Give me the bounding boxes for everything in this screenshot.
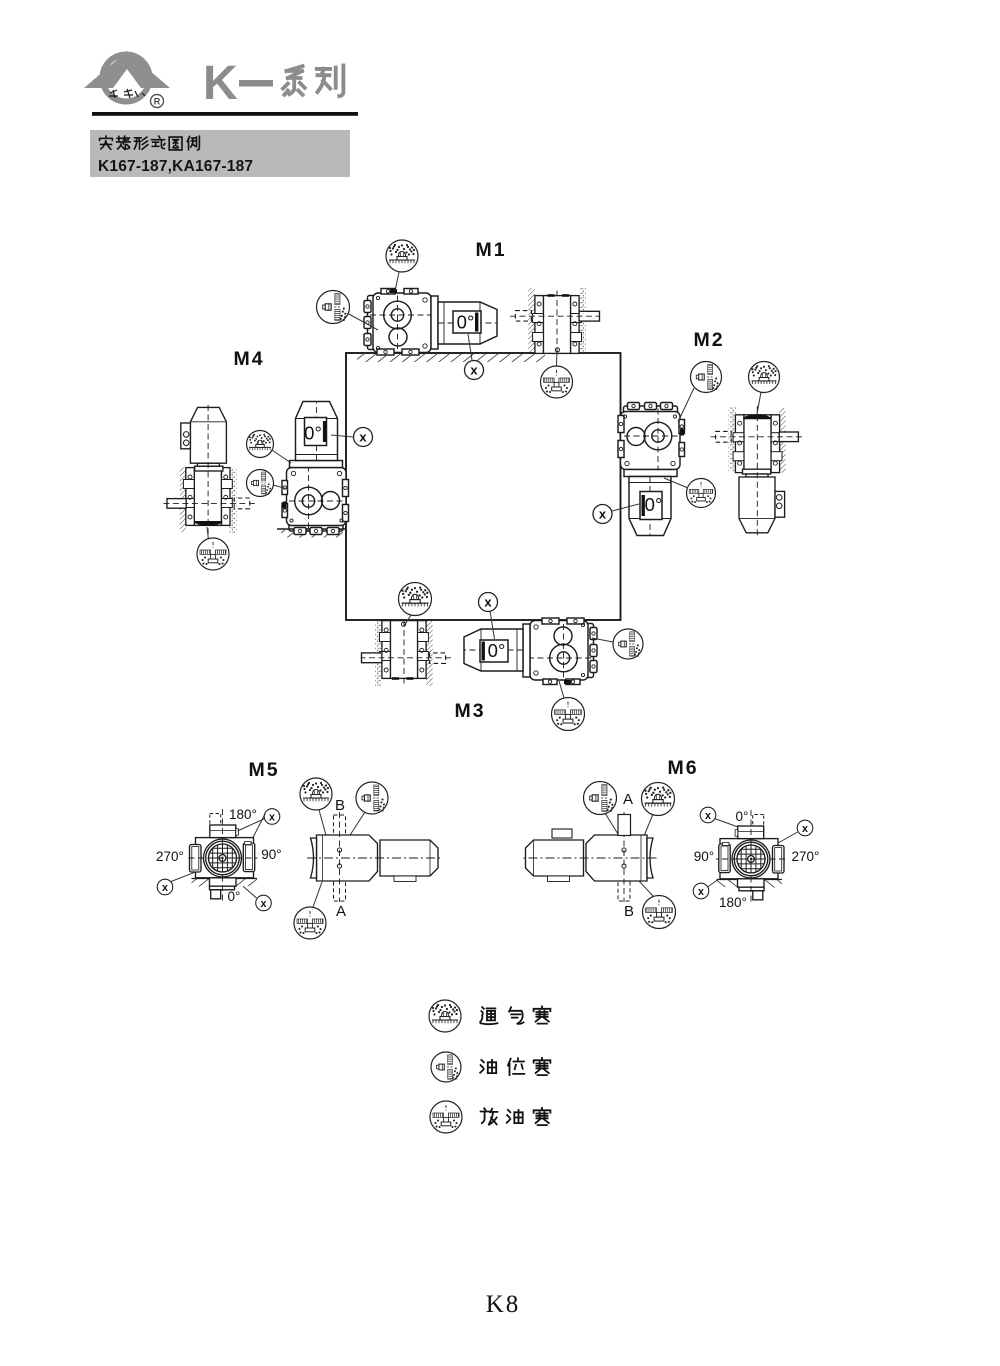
svg-text:180°: 180° [229, 807, 257, 822]
svg-text:K167-187,KA167-187: K167-187,KA167-187 [98, 158, 253, 175]
svg-text:R: R [154, 97, 161, 107]
svg-text:B: B [335, 797, 345, 814]
svg-text:180°: 180° [719, 895, 747, 910]
svg-text:0°: 0° [488, 640, 506, 661]
svg-text:270°: 270° [156, 849, 184, 864]
svg-text:0°: 0° [457, 312, 475, 333]
svg-text:K8: K8 [486, 1291, 521, 1318]
svg-text:0°: 0° [736, 809, 749, 824]
svg-text:K: K [203, 57, 238, 110]
svg-text:0°: 0° [228, 889, 241, 904]
svg-text:B: B [624, 903, 634, 920]
svg-text:M6: M6 [667, 757, 698, 779]
svg-text:90°: 90° [694, 849, 714, 864]
svg-text:0°: 0° [645, 494, 663, 515]
svg-text:M3: M3 [454, 700, 485, 722]
svg-text:90°: 90° [261, 847, 281, 862]
svg-text:M2: M2 [693, 329, 724, 351]
svg-text:M4: M4 [233, 348, 264, 370]
svg-text:M5: M5 [248, 759, 279, 781]
svg-text:M1: M1 [475, 239, 506, 261]
svg-text:0°: 0° [304, 423, 322, 444]
svg-text:270°: 270° [792, 849, 820, 864]
svg-text:A: A [623, 791, 633, 808]
svg-text:A: A [336, 903, 346, 920]
